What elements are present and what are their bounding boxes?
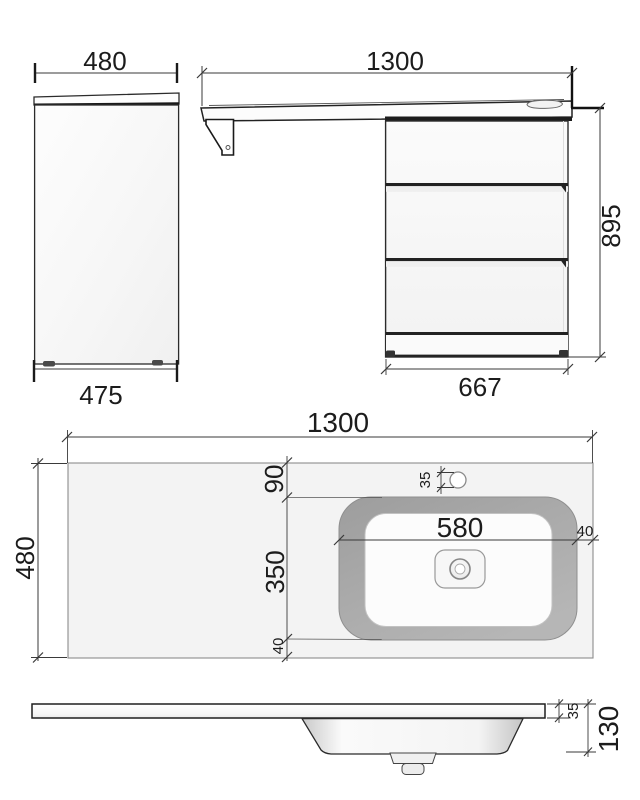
top-view <box>68 463 593 658</box>
technical-drawing-canvas: 480 475 <box>0 0 640 800</box>
profile-basin <box>302 719 523 754</box>
front-view-drawer-separator-1 <box>386 183 568 193</box>
front-view-sink-top-outline <box>527 100 563 108</box>
drawing-svg: 480 475 <box>0 0 640 800</box>
front-view-foot-left <box>386 351 395 358</box>
front-view-height-dimension: 895 <box>567 103 626 362</box>
side-view-depth-dimension: 480 <box>35 46 177 83</box>
front-view-wall-bracket <box>206 120 234 156</box>
side-view <box>34 93 179 367</box>
dim-label-front-offset: 40 <box>270 638 287 655</box>
dim-label-front-width: 1300 <box>366 46 424 76</box>
front-view <box>201 100 572 358</box>
front-view-drawer-separator-2 <box>386 258 568 268</box>
front-view-bottom-rail <box>386 332 568 356</box>
dim-label-basin-width: 580 <box>437 512 484 543</box>
side-view-cabinet-body <box>35 105 179 364</box>
dim-label-top-depth: 480 <box>10 536 40 579</box>
top-view-drain-hole <box>455 564 465 574</box>
dim-label-right-offset: 40 <box>577 523 594 540</box>
dim-label-front-height: 895 <box>596 204 626 247</box>
side-view-bottom-dimension: 475 <box>34 360 177 410</box>
dim-label-top-width: 1300 <box>307 407 369 438</box>
dim-label-back-offset: 90 <box>259 465 289 494</box>
front-view-cabinet-width-dimension: 667 <box>381 359 573 402</box>
dim-label-slab-thickness: 35 <box>565 703 582 720</box>
dim-label-basin-depth: 350 <box>260 550 290 593</box>
dim-label-cabinet-width: 667 <box>458 372 501 402</box>
profile-drain-flange <box>390 753 436 764</box>
profile-drain-nub <box>402 764 424 775</box>
dim-label-faucet-hole: 35 <box>417 472 434 489</box>
front-view-drawer-body <box>386 121 568 357</box>
front-view-foot-right <box>559 350 569 357</box>
dim-label-side-bottom: 475 <box>79 380 122 410</box>
dim-label-side-depth: 480 <box>83 46 126 76</box>
top-view-faucet-hole <box>450 472 466 488</box>
side-view-foot-right <box>152 360 163 366</box>
dim-label-profile-height: 130 <box>593 706 624 753</box>
front-view-width-dimension: 1300 <box>197 46 604 108</box>
profile-countertop-slab <box>32 704 545 718</box>
top-view-width-dimension: 1300 <box>62 407 597 463</box>
side-view-foot-left <box>43 361 55 367</box>
top-view-depth-dimension: 480 <box>10 458 67 663</box>
profile-view <box>32 704 545 775</box>
